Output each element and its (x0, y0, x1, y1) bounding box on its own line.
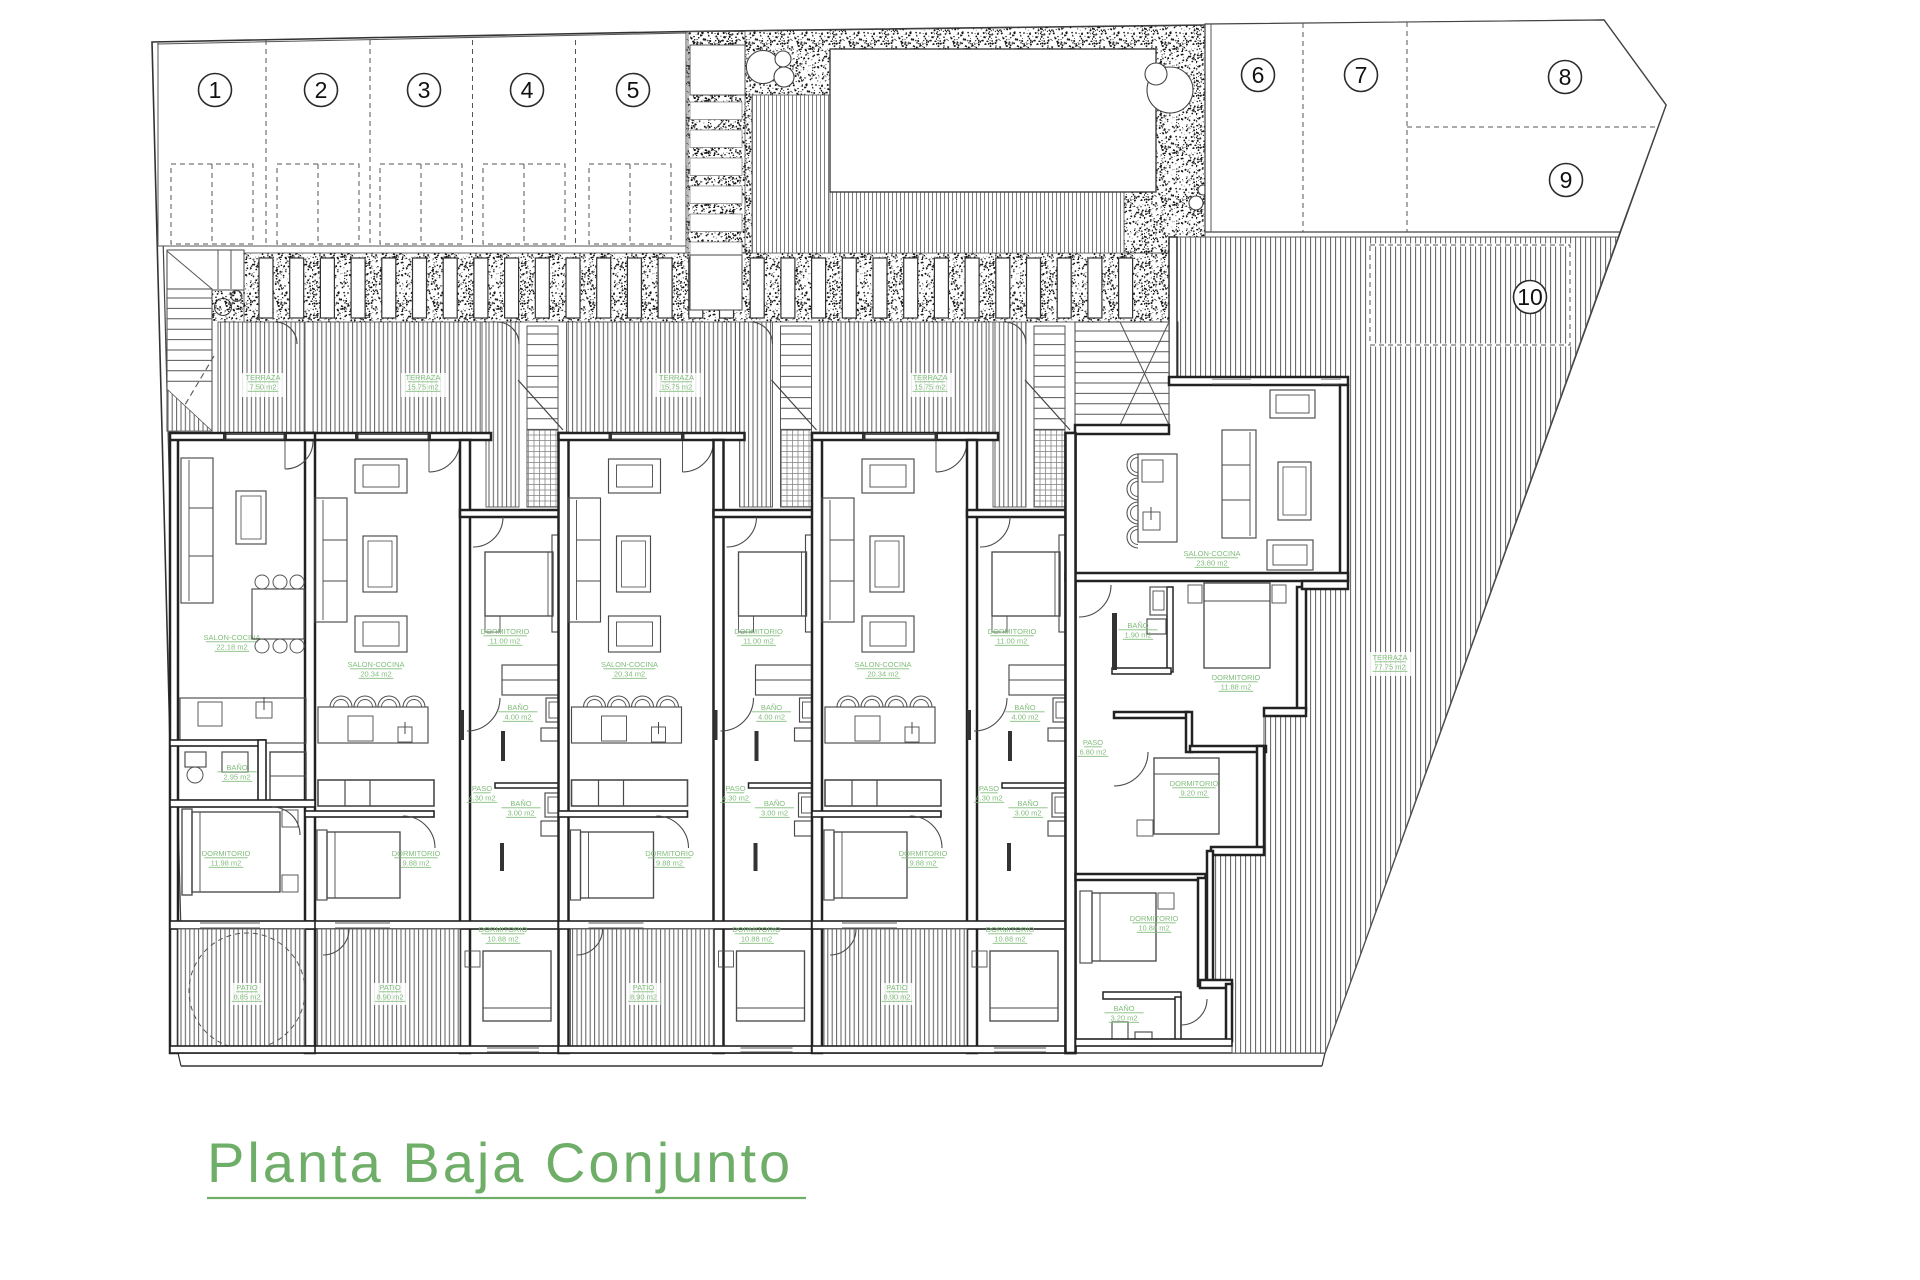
svg-text:3: 3 (418, 77, 431, 103)
svg-text:DORMITORIO: DORMITORIO (732, 925, 781, 934)
svg-text:BAÑO: BAÑO (510, 799, 531, 808)
svg-text:23.80 m2: 23.80 m2 (1196, 559, 1227, 568)
svg-text:SALON-COCINA: SALON-COCINA (854, 660, 911, 669)
svg-text:4.00 m2: 4.00 m2 (758, 713, 785, 722)
svg-text:DORMITORIO: DORMITORIO (1130, 914, 1179, 923)
svg-text:TERRAZA: TERRAZA (1372, 653, 1407, 662)
svg-text:22.18 m2: 22.18 m2 (216, 643, 247, 652)
svg-text:BAÑO: BAÑO (1127, 621, 1148, 630)
svg-text:6: 6 (1252, 62, 1265, 88)
svg-text:BAÑO: BAÑO (1113, 1004, 1134, 1013)
svg-text:TERRAZA: TERRAZA (405, 373, 440, 382)
svg-text:9.88 m2: 9.88 m2 (909, 859, 936, 868)
svg-text:TERRAZA: TERRAZA (912, 373, 947, 382)
svg-text:PASO: PASO (979, 784, 999, 793)
svg-text:TERRAZA: TERRAZA (245, 373, 280, 382)
svg-text:15.75 m2: 15.75 m2 (407, 383, 438, 392)
svg-text:4.30 m2: 4.30 m2 (722, 794, 749, 803)
svg-text:DORMITORIO: DORMITORIO (988, 627, 1037, 636)
svg-text:8.90 m2: 8.90 m2 (630, 993, 657, 1002)
svg-text:11.00 m2: 11.00 m2 (997, 637, 1028, 646)
svg-text:4: 4 (521, 77, 534, 103)
svg-text:10.88 m2: 10.88 m2 (1138, 924, 1169, 933)
svg-text:SALON-COCINA: SALON-COCINA (601, 660, 658, 669)
svg-text:2.95 m2: 2.95 m2 (223, 773, 250, 782)
svg-text:20.34 m2: 20.34 m2 (867, 670, 898, 679)
svg-text:PATIO: PATIO (633, 983, 655, 992)
svg-text:1: 1 (209, 77, 222, 103)
svg-text:DORMITORIO: DORMITORIO (481, 627, 530, 636)
svg-text:11.88 m2: 11.88 m2 (1221, 683, 1252, 692)
svg-text:77.75 m2: 77.75 m2 (1374, 663, 1405, 672)
svg-text:9.20 m2: 9.20 m2 (1180, 789, 1207, 798)
svg-text:3.20 m2: 3.20 m2 (1110, 1014, 1137, 1023)
svg-text:4.00 m2: 4.00 m2 (504, 713, 531, 722)
svg-text:10.88 m2: 10.88 m2 (487, 935, 518, 944)
svg-text:3.00 m2: 3.00 m2 (761, 809, 788, 818)
svg-text:20.34 m2: 20.34 m2 (360, 670, 391, 679)
svg-text:SALON-COCINA: SALON-COCINA (347, 660, 404, 669)
svg-text:4.30 m2: 4.30 m2 (975, 794, 1002, 803)
svg-text:DORMITORIO: DORMITORIO (392, 849, 441, 858)
svg-text:PASO: PASO (725, 784, 745, 793)
svg-text:DORMITORIO: DORMITORIO (986, 925, 1035, 934)
svg-text:4.00 m2: 4.00 m2 (1011, 713, 1038, 722)
svg-text:PASO: PASO (1083, 738, 1103, 747)
svg-text:DORMITORIO: DORMITORIO (645, 849, 694, 858)
svg-text:1.90 m2: 1.90 m2 (1124, 631, 1151, 640)
svg-text:BAÑO: BAÑO (1017, 799, 1038, 808)
svg-text:BAÑO: BAÑO (764, 799, 785, 808)
svg-text:6.80 m2: 6.80 m2 (1079, 748, 1106, 757)
svg-text:PATIO: PATIO (379, 983, 401, 992)
svg-text:DORMITORIO: DORMITORIO (202, 849, 251, 858)
svg-text:2: 2 (315, 77, 328, 103)
svg-text:3.00 m2: 3.00 m2 (1014, 809, 1041, 818)
svg-text:15.75 m2: 15.75 m2 (914, 383, 945, 392)
svg-text:7: 7 (1355, 62, 1368, 88)
svg-text:9: 9 (1560, 167, 1573, 193)
svg-text:DORMITORIO: DORMITORIO (899, 849, 948, 858)
svg-text:PATIO: PATIO (886, 983, 908, 992)
svg-text:10.88 m2: 10.88 m2 (741, 935, 772, 944)
svg-text:7.50 m2: 7.50 m2 (249, 383, 276, 392)
svg-text:9.88 m2: 9.88 m2 (402, 859, 429, 868)
svg-text:11.00 m2: 11.00 m2 (490, 637, 521, 646)
svg-text:10.88 m2: 10.88 m2 (994, 935, 1025, 944)
svg-text:PATIO: PATIO (236, 983, 258, 992)
svg-text:15.75 m2: 15.75 m2 (661, 383, 692, 392)
svg-text:DORMITORIO: DORMITORIO (1170, 779, 1219, 788)
svg-text:9.88 m2: 9.88 m2 (656, 859, 683, 868)
svg-text:8: 8 (1559, 64, 1572, 90)
svg-text:PASO: PASO (472, 784, 492, 793)
svg-text:BAÑO: BAÑO (1014, 703, 1035, 712)
svg-text:BAÑO: BAÑO (761, 703, 782, 712)
svg-text:BAÑO: BAÑO (226, 763, 247, 772)
svg-text:11.98 m2: 11.98 m2 (211, 859, 242, 868)
svg-text:11.00 m2: 11.00 m2 (743, 637, 774, 646)
svg-text:BAÑO: BAÑO (507, 703, 528, 712)
svg-text:3.00 m2: 3.00 m2 (507, 809, 534, 818)
svg-text:Planta Baja Conjunto: Planta Baja Conjunto (207, 1131, 793, 1194)
svg-text:TERRAZA: TERRAZA (659, 373, 694, 382)
svg-text:8.90 m2: 8.90 m2 (376, 993, 403, 1002)
svg-text:8.85 m2: 8.85 m2 (233, 993, 260, 1002)
svg-text:DORMITORIO: DORMITORIO (1212, 673, 1261, 682)
svg-text:SALON-COCINA: SALON-COCINA (1183, 549, 1240, 558)
svg-text:4.30 m2: 4.30 m2 (468, 794, 495, 803)
svg-text:5: 5 (627, 77, 640, 103)
svg-text:DORMITORIO: DORMITORIO (734, 627, 783, 636)
svg-text:DORMITORIO: DORMITORIO (479, 925, 528, 934)
svg-text:20.34 m2: 20.34 m2 (614, 670, 645, 679)
svg-text:8.90 m2: 8.90 m2 (883, 993, 910, 1002)
svg-text:10: 10 (1517, 284, 1543, 310)
